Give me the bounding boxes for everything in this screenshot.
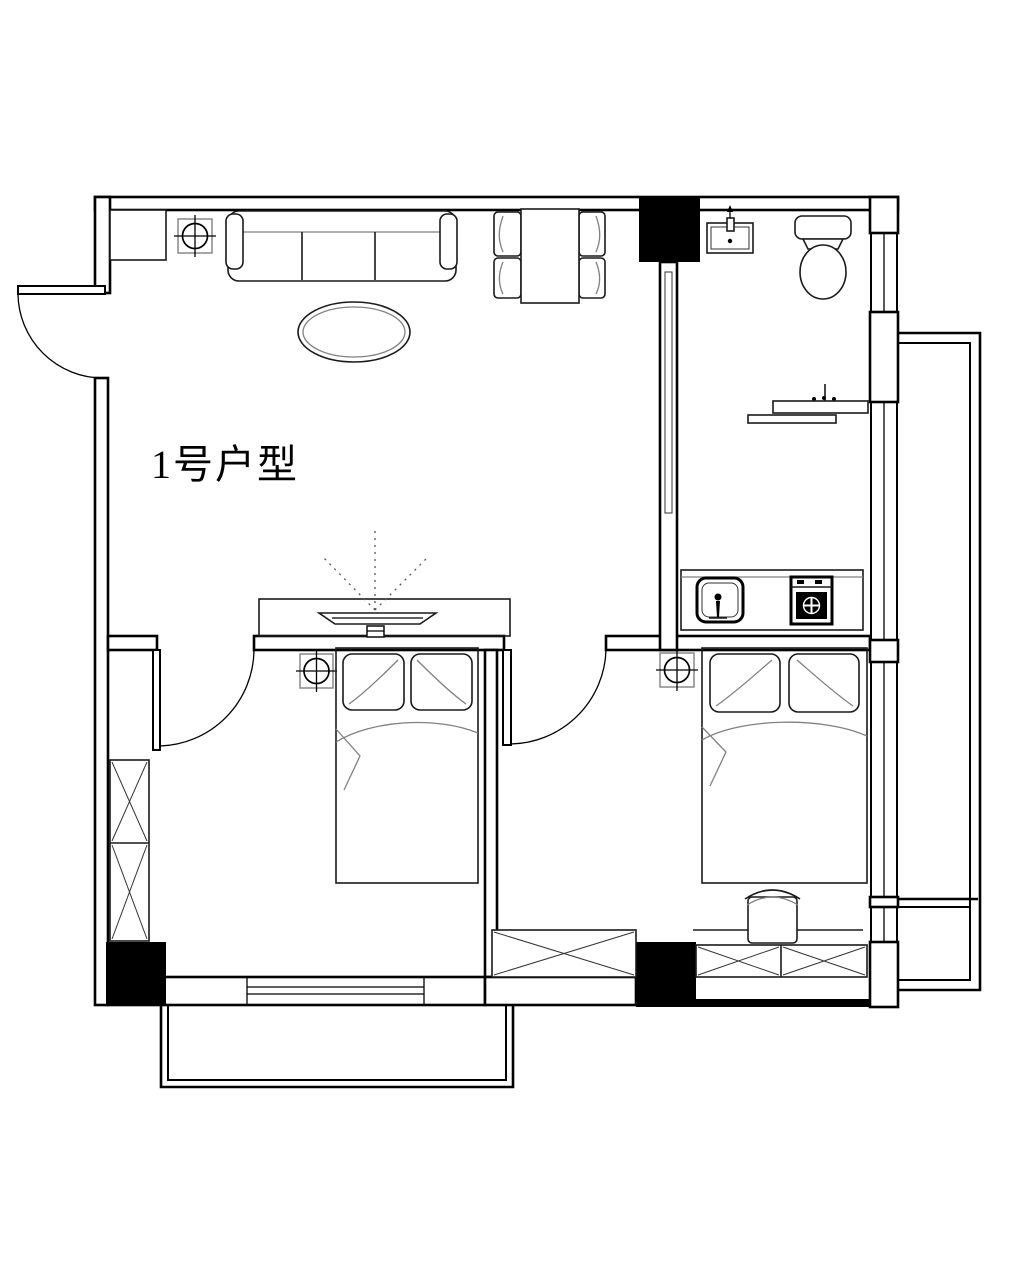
sofa-body [228, 211, 456, 281]
tv-signal-ray [322, 556, 375, 610]
alcove-wardrobe [492, 930, 636, 977]
window-right-bath-upper [870, 233, 898, 312]
wall-bath-divider [660, 262, 677, 650]
bedroom-left-door-swing-arc [160, 650, 254, 746]
tall-wardrobe [110, 760, 149, 941]
toilet-tank [795, 216, 851, 239]
wall-right-solid-5 [870, 942, 898, 1007]
wall-right-solid-4 [870, 897, 898, 907]
wall-bottom-band-2 [485, 977, 636, 1005]
bedroom-right-door-swing-arc [511, 650, 606, 744]
balcony-bottom-inner-wall [168, 1005, 506, 1080]
window-right-small [870, 907, 898, 942]
column-bottom-left [106, 942, 166, 1005]
kitchen-sink-faucet [715, 594, 722, 601]
blanket-corner-fold [336, 729, 360, 790]
floor-plan-canvas: 1号户型 [0, 0, 1024, 1280]
wall-bed1-divider [485, 650, 497, 977]
balcony-bottom [161, 1005, 513, 1087]
toilet-bowl [800, 245, 846, 299]
washbasin-faucet [727, 218, 734, 231]
vanity-shelf [748, 384, 868, 423]
oval-coffee-table [298, 302, 410, 362]
stool [745, 890, 800, 943]
cooktop-knob [797, 580, 804, 584]
washbasin [707, 205, 753, 253]
sofa-arm-right [440, 214, 457, 269]
wall-left-lower [95, 378, 108, 1005]
balcony-right-outer-wall [898, 333, 980, 990]
floor-plan-page: 1号户型 [0, 0, 1024, 1280]
column-marker-bedroom-left [296, 650, 337, 692]
coffee-table-inner [303, 307, 405, 357]
blanket-fold [702, 722, 867, 740]
entry-cabinet [110, 210, 166, 260]
toilet [795, 216, 851, 299]
window-right-bath-lower [870, 402, 898, 640]
coffee-table-outer [298, 302, 410, 362]
vanity-shelf-upper [773, 401, 868, 413]
column-marker-bedroom-right [656, 649, 698, 691]
window-right-bedroom2 [870, 662, 898, 897]
dining-chair [494, 258, 521, 298]
structural-columns [106, 197, 700, 1007]
column-top [639, 197, 700, 262]
balcony-right-inner-wall [898, 343, 970, 980]
cooktop-knob [815, 580, 822, 584]
wall-top [95, 197, 898, 210]
kitchen-sink [697, 578, 743, 622]
dining-chair [579, 212, 605, 256]
wall-right-solid-2 [870, 312, 898, 402]
cooktop [791, 577, 832, 624]
bedroom-right-door-leaf [503, 650, 511, 745]
entry-door-leaf [18, 286, 105, 294]
wall-left-upper [95, 197, 110, 293]
entry-door-swing-arc [18, 294, 103, 378]
dining-chair [579, 258, 605, 298]
tv-signal-ray [375, 556, 429, 610]
low-wardrobe [696, 945, 867, 977]
entry-door [18, 286, 105, 378]
blanket-fold [336, 722, 478, 742]
dining-set [494, 209, 605, 303]
tv-unit [259, 527, 510, 637]
balcony-right [898, 333, 980, 990]
dining-chair [494, 212, 521, 256]
wall-right-solid-1 [870, 197, 898, 233]
balcony-bottom-outer-wall [161, 1005, 513, 1087]
dining-table [521, 209, 579, 303]
blanket-corner-fold [702, 727, 726, 786]
vanity-faucet-handle [822, 396, 826, 400]
washbasin-drain [728, 239, 732, 243]
bedroom-left-door [153, 650, 254, 750]
tall-wardrobe-body [110, 760, 149, 941]
kitchen-counter [681, 570, 863, 630]
sofa [226, 211, 457, 281]
column-bottom-mid [636, 942, 696, 1007]
vanity-shelf-lower [748, 415, 836, 423]
column-marker-entry [174, 215, 216, 257]
bedroom-right-door [503, 650, 606, 745]
stool-seat [748, 897, 797, 943]
unit-label: 1号户型 [151, 442, 299, 487]
sofa-arm-left [226, 214, 243, 269]
bedroom-left-furniture [110, 648, 478, 941]
bedroom-right-furniture [492, 648, 867, 977]
bedroom-left-door-leaf [153, 650, 160, 750]
wall-bed1-top-a [108, 636, 157, 650]
wall-right-solid-3 [870, 640, 898, 662]
